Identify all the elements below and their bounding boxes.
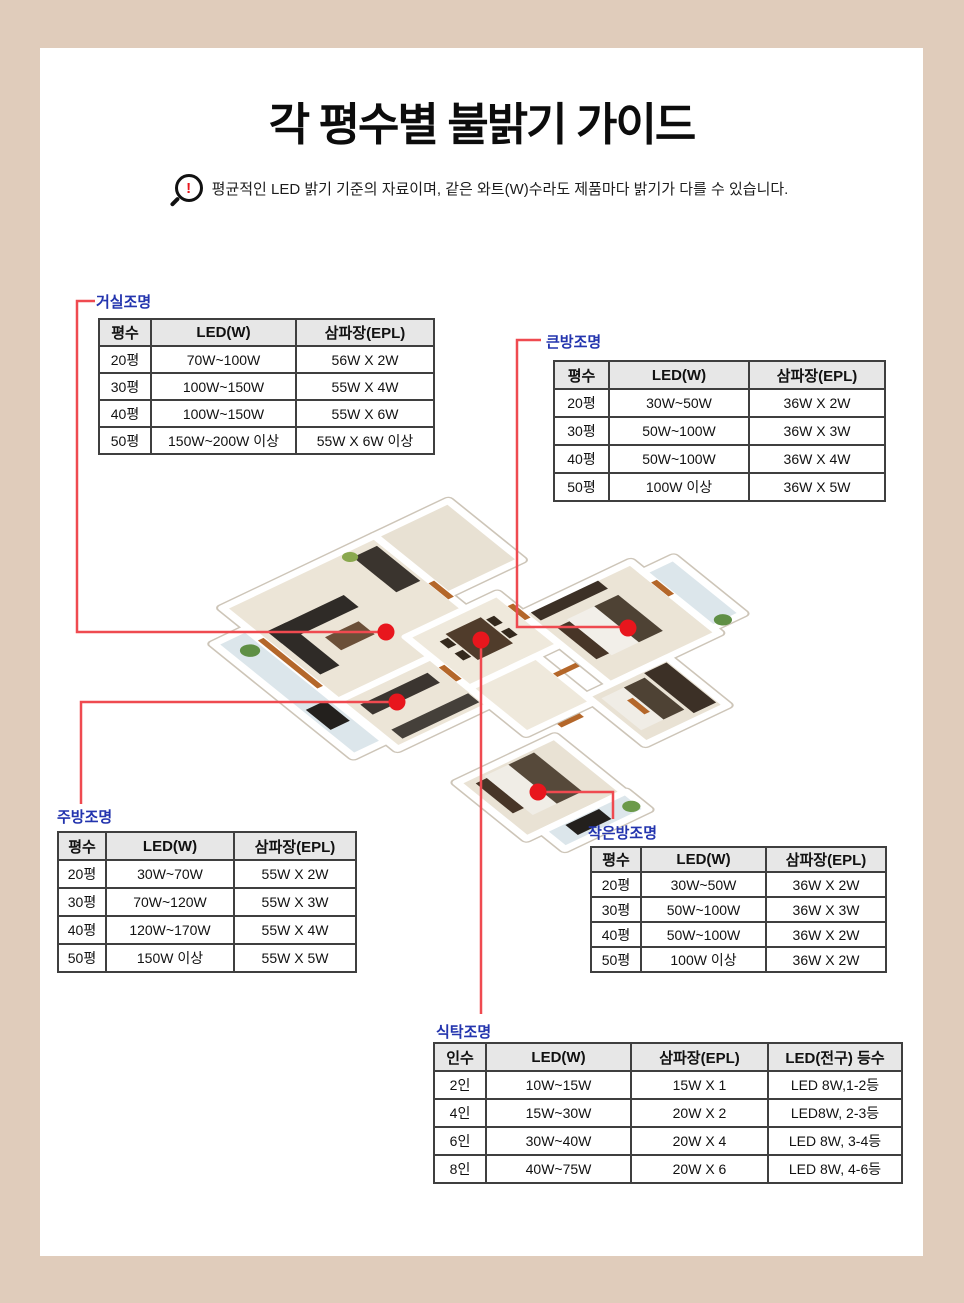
table-row: 30평50W~100W36W X 3W	[554, 417, 885, 445]
table-cell: 20평	[554, 389, 609, 417]
column-header: 평수	[58, 832, 106, 860]
table-cell: 55W X 2W	[234, 860, 356, 888]
table-cell: 70W~100W	[151, 346, 296, 373]
magnifier-exclamation-icon: !	[175, 174, 203, 202]
table-cell: 55W X 4W	[296, 373, 434, 400]
small-room-table: 평수LED(W)삼파장(EPL)20평30W~50W36W X 2W30평50W…	[590, 846, 887, 973]
table-row: 40평50W~100W36W X 2W	[591, 922, 886, 947]
table-row: 50평100W 이상36W X 5W	[554, 473, 885, 501]
table-cell: 4인	[434, 1099, 486, 1127]
column-header: 평수	[591, 847, 641, 872]
table-cell: 36W X 2W	[749, 389, 885, 417]
column-header: 삼파장(EPL)	[296, 319, 434, 346]
table-cell: 40평	[591, 922, 641, 947]
table-cell: 50W~100W	[641, 897, 766, 922]
small-room-label: 작은방조명	[588, 822, 657, 843]
table-cell: LED 8W,1-2등	[768, 1071, 902, 1099]
table-cell: 55W X 5W	[234, 944, 356, 972]
table-cell: 56W X 2W	[296, 346, 434, 373]
table-cell: LED8W, 2-3등	[768, 1099, 902, 1127]
table-row: 8인40W~75W20W X 6LED 8W, 4-6등	[434, 1155, 902, 1183]
table-cell: 50평	[554, 473, 609, 501]
table-header-row: 평수LED(W)삼파장(EPL)	[58, 832, 356, 860]
column-header: LED(W)	[641, 847, 766, 872]
table-cell: 20평	[99, 346, 151, 373]
table-cell: 100W 이상	[609, 473, 749, 501]
table-row: 40평100W~150W55W X 6W	[99, 400, 434, 427]
notice-row: ! 평균적인 LED 밝기 기준의 자료이며, 같은 와트(W)수라도 제품마다…	[40, 174, 923, 202]
table-cell: 30W~50W	[641, 872, 766, 897]
table-cell: 55W X 6W	[296, 400, 434, 427]
table-cell: 36W X 3W	[766, 897, 886, 922]
infographic-page: { "page": { "title": "각 평수별 불밝기 가이드", "n…	[0, 0, 964, 1303]
table-cell: 20W X 4	[631, 1127, 768, 1155]
column-header: LED(전구) 등수	[768, 1043, 902, 1071]
table-cell: 36W X 2W	[766, 947, 886, 972]
table-cell: 30평	[99, 373, 151, 400]
page-title: 각 평수별 불밝기 가이드	[40, 88, 923, 153]
table-cell: 50W~100W	[641, 922, 766, 947]
table-cell: 50W~100W	[609, 417, 749, 445]
table-cell: 50평	[99, 427, 151, 454]
table-cell: 36W X 2W	[766, 922, 886, 947]
table-cell: 30W~70W	[106, 860, 234, 888]
table-cell: 55W X 4W	[234, 916, 356, 944]
table-cell: 100W 이상	[641, 947, 766, 972]
table-cell: 30W~40W	[486, 1127, 631, 1155]
table-header-row: 인수LED(W)삼파장(EPL)LED(전구) 등수	[434, 1043, 902, 1071]
living-room-label: 거실조명	[96, 291, 151, 312]
kitchen-table: 평수LED(W)삼파장(EPL)20평30W~70W55W X 2W30평70W…	[57, 831, 357, 973]
table-cell: 100W~150W	[151, 400, 296, 427]
table-cell: 150W~200W 이상	[151, 427, 296, 454]
exclamation-mark: !	[186, 181, 191, 196]
table-cell: 20평	[591, 872, 641, 897]
table-row: 30평70W~120W55W X 3W	[58, 888, 356, 916]
table-cell: 40평	[58, 916, 106, 944]
column-header: 삼파장(EPL)	[749, 361, 885, 389]
table-cell: 150W 이상	[106, 944, 234, 972]
column-header: 삼파장(EPL)	[766, 847, 886, 872]
table-row: 50평150W~200W 이상55W X 6W 이상	[99, 427, 434, 454]
table-cell: 15W X 1	[631, 1071, 768, 1099]
table-cell: 30평	[554, 417, 609, 445]
table-cell: 2인	[434, 1071, 486, 1099]
column-header: LED(W)	[486, 1043, 631, 1071]
big-room-label: 큰방조명	[546, 331, 601, 352]
table-cell: 55W X 3W	[234, 888, 356, 916]
table-cell: 50평	[58, 944, 106, 972]
table-cell: 100W~150W	[151, 373, 296, 400]
table-row: 30평100W~150W55W X 4W	[99, 373, 434, 400]
table-cell: 6인	[434, 1127, 486, 1155]
notice-text: 평균적인 LED 밝기 기준의 자료이며, 같은 와트(W)수라도 제품마다 밝…	[212, 178, 789, 199]
table-cell: 20W X 6	[631, 1155, 768, 1183]
table-cell: 36W X 3W	[749, 417, 885, 445]
table-cell: 20W X 2	[631, 1099, 768, 1127]
column-header: 평수	[99, 319, 151, 346]
table-cell: LED 8W, 3-4등	[768, 1127, 902, 1155]
table-row: 20평70W~100W56W X 2W	[99, 346, 434, 373]
table-cell: 8인	[434, 1155, 486, 1183]
table-cell: 30평	[58, 888, 106, 916]
table-row: 20평30W~50W36W X 2W	[591, 872, 886, 897]
column-header: LED(W)	[151, 319, 296, 346]
column-header: LED(W)	[106, 832, 234, 860]
table-cell: LED 8W, 4-6등	[768, 1155, 902, 1183]
table-row: 2인10W~15W15W X 1LED 8W,1-2등	[434, 1071, 902, 1099]
table-cell: 36W X 5W	[749, 473, 885, 501]
dining-table-label: 식탁조명	[436, 1021, 491, 1042]
table-cell: 36W X 4W	[749, 445, 885, 473]
column-header: 평수	[554, 361, 609, 389]
table-cell: 30평	[591, 897, 641, 922]
table-cell: 30W~50W	[609, 389, 749, 417]
table-row: 20평30W~70W55W X 2W	[58, 860, 356, 888]
table-header-row: 평수LED(W)삼파장(EPL)	[554, 361, 885, 389]
dining-table-table: 인수LED(W)삼파장(EPL)LED(전구) 등수2인10W~15W15W X…	[433, 1042, 903, 1184]
table-cell: 55W X 6W 이상	[296, 427, 434, 454]
kitchen-label: 주방조명	[57, 806, 112, 827]
living-room-table: 평수LED(W)삼파장(EPL)20평70W~100W56W X 2W30평10…	[98, 318, 435, 455]
table-row: 50평100W 이상36W X 2W	[591, 947, 886, 972]
table-header-row: 평수LED(W)삼파장(EPL)	[591, 847, 886, 872]
table-cell: 36W X 2W	[766, 872, 886, 897]
big-room-table: 평수LED(W)삼파장(EPL)20평30W~50W36W X 2W30평50W…	[553, 360, 886, 502]
column-header: 삼파장(EPL)	[234, 832, 356, 860]
table-cell: 20평	[58, 860, 106, 888]
table-row: 4인15W~30W20W X 2LED8W, 2-3등	[434, 1099, 902, 1127]
table-row: 30평50W~100W36W X 3W	[591, 897, 886, 922]
table-cell: 40W~75W	[486, 1155, 631, 1183]
column-header: LED(W)	[609, 361, 749, 389]
table-cell: 10W~15W	[486, 1071, 631, 1099]
table-cell: 70W~120W	[106, 888, 234, 916]
table-cell: 15W~30W	[486, 1099, 631, 1127]
table-row: 50평150W 이상55W X 5W	[58, 944, 356, 972]
table-row: 40평120W~170W55W X 4W	[58, 916, 356, 944]
table-cell: 50W~100W	[609, 445, 749, 473]
column-header: 인수	[434, 1043, 486, 1071]
table-cell: 40평	[554, 445, 609, 473]
column-header: 삼파장(EPL)	[631, 1043, 768, 1071]
table-row: 40평50W~100W36W X 4W	[554, 445, 885, 473]
table-header-row: 평수LED(W)삼파장(EPL)	[99, 319, 434, 346]
table-cell: 40평	[99, 400, 151, 427]
table-row: 20평30W~50W36W X 2W	[554, 389, 885, 417]
table-row: 6인30W~40W20W X 4LED 8W, 3-4등	[434, 1127, 902, 1155]
table-cell: 120W~170W	[106, 916, 234, 944]
table-cell: 50평	[591, 947, 641, 972]
